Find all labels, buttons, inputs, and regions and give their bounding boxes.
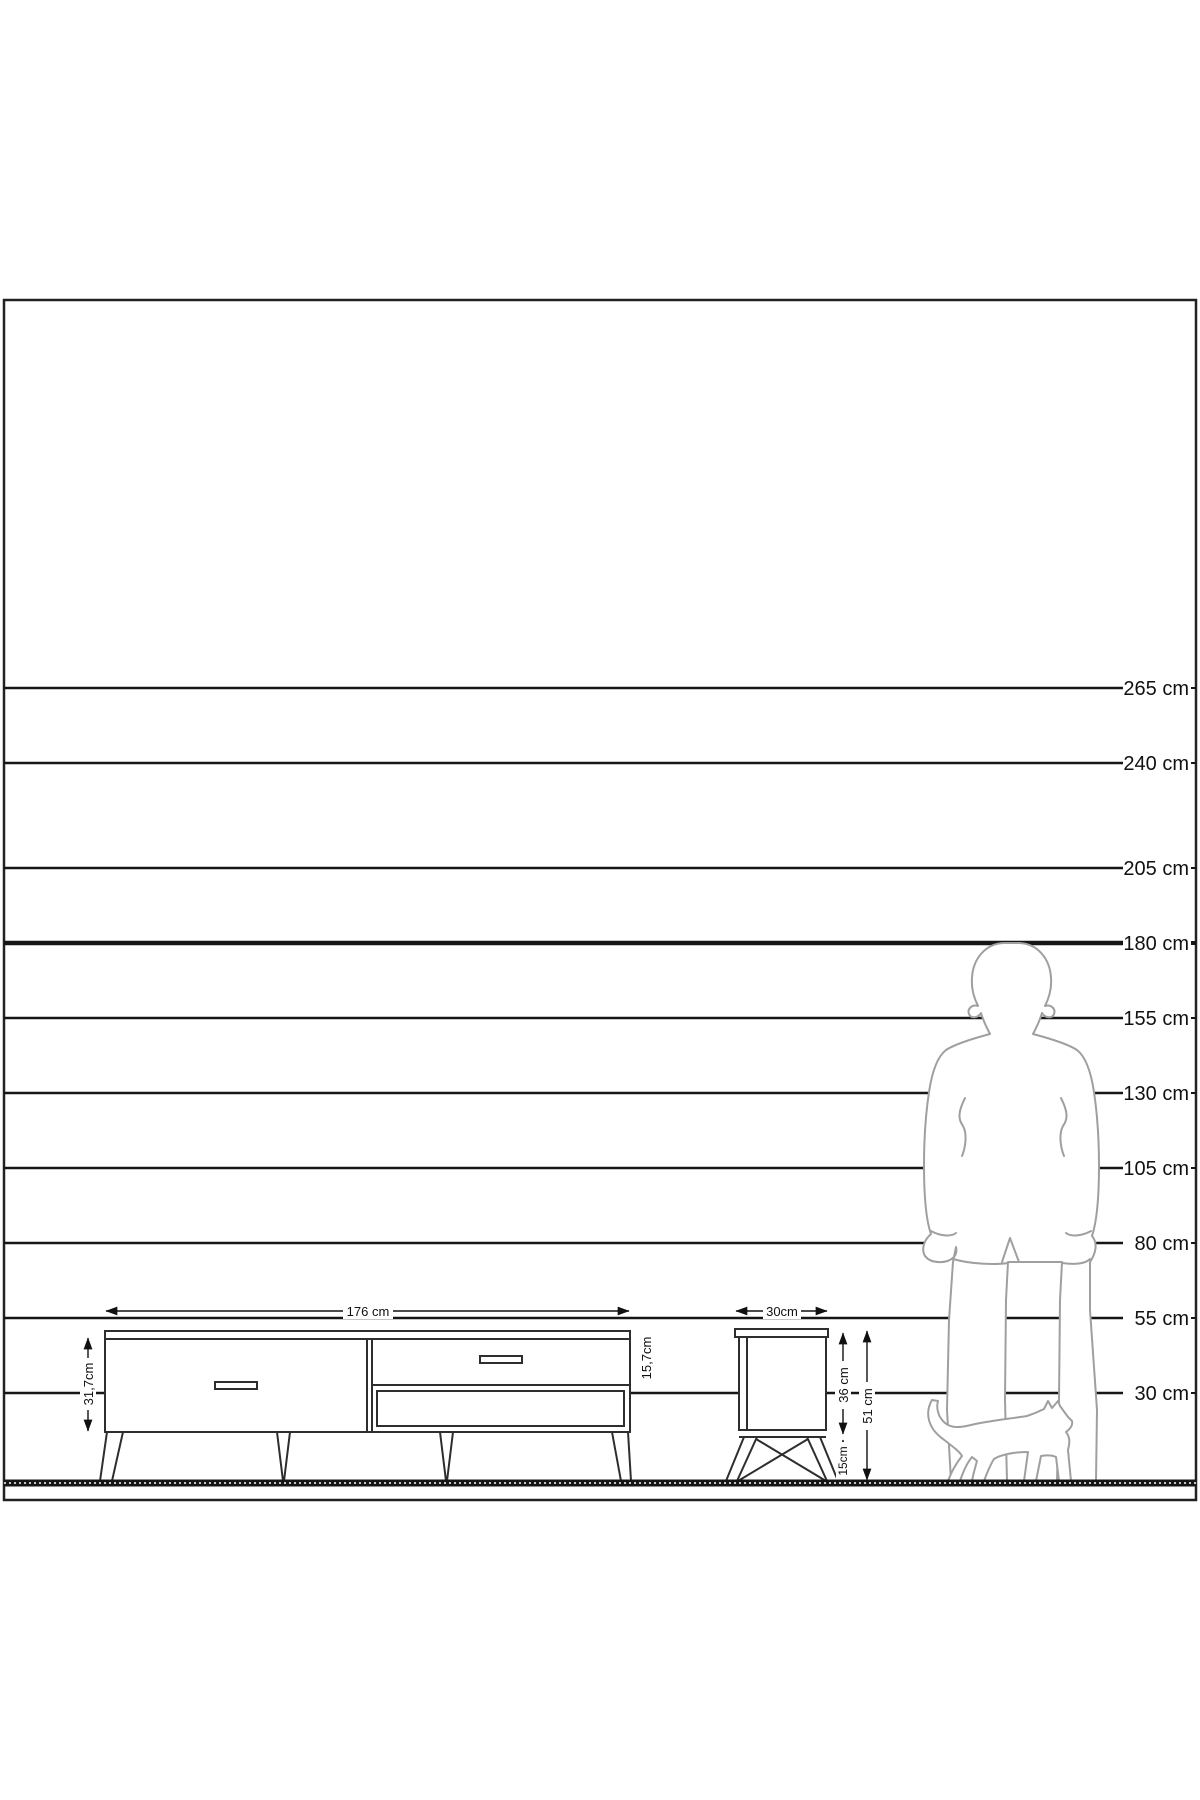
- diagram-page: 265 cm240 cm205 cm180 cm155 cm130 cm105 …: [0, 0, 1200, 1800]
- side-table-top-panel: [735, 1329, 828, 1337]
- scale-label-265: 265 cm: [1123, 678, 1189, 700]
- side-table-total-height-label: 51 cm: [860, 1388, 875, 1423]
- scale-label-180: 180 cm: [1123, 933, 1189, 955]
- diagram-frame: [4, 300, 1196, 1500]
- scale-label-240: 240 cm: [1123, 753, 1189, 775]
- scale-label-55: 55 cm: [1135, 1308, 1189, 1330]
- tv-stand-drawer-label: 15,7cm: [639, 1337, 654, 1380]
- tv-stand-right-handle: [480, 1356, 522, 1363]
- side-table-width-label: 30cm: [766, 1304, 798, 1319]
- scale-label-30: 30 cm: [1135, 1383, 1189, 1405]
- scale-label-155: 155 cm: [1123, 1008, 1189, 1030]
- scale-label-105: 105 cm: [1123, 1158, 1189, 1180]
- tv-stand-left-handle: [215, 1382, 257, 1389]
- scale-label-130: 130 cm: [1123, 1083, 1189, 1105]
- side-table-body: [739, 1337, 826, 1430]
- scale-label-80: 80 cm: [1135, 1233, 1189, 1255]
- side-table-body-height-label: 36 cm: [836, 1367, 851, 1402]
- tv-stand-width-label: 176 cm: [347, 1304, 390, 1319]
- furniture-scale-diagram: 265 cm240 cm205 cm180 cm155 cm130 cm105 …: [0, 0, 1200, 1800]
- scale-label-205: 205 cm: [1123, 858, 1189, 880]
- side-table-leg-height-label: 15cm: [836, 1446, 850, 1475]
- tv-stand-height-label: 31,7cm: [81, 1363, 96, 1406]
